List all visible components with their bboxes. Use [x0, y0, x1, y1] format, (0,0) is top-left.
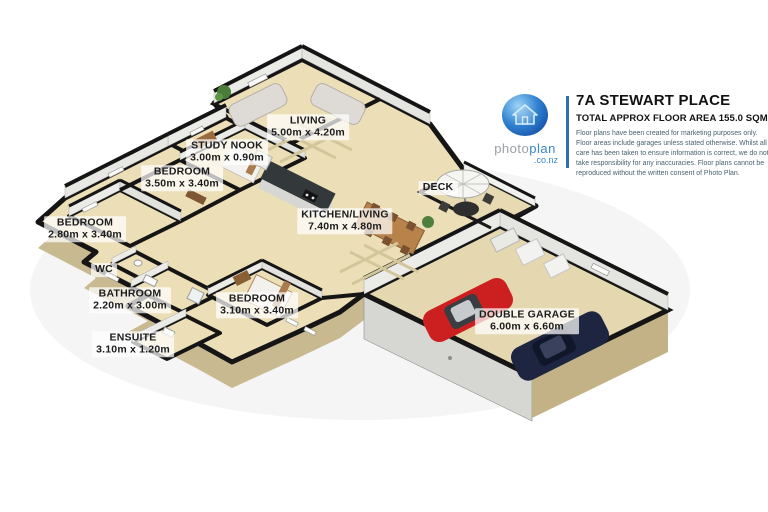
room-label-deck: DECK	[419, 181, 458, 195]
page-title: 7A STEWART PLACE	[576, 92, 768, 109]
floor-area-subtitle: TOTAL APPROX FLOOR AREA 155.0 SQM	[576, 113, 768, 124]
title-block: 7A STEWART PLACE TOTAL APPROX FLOOR AREA…	[576, 92, 768, 179]
garage-door-handle	[448, 356, 452, 360]
room-label-kitchen-living: KITCHEN/LIVING 7.40m x 4.80m	[297, 208, 392, 234]
floor-plan-page: LIVING 5.00m x 4.20m STUDY NOOK 3.00m x …	[0, 0, 768, 512]
cooktop-burner	[306, 194, 309, 197]
floor-plan-illustration	[0, 0, 768, 512]
room-label-bedroom3: BEDROOM 2.80m x 3.40m	[44, 216, 126, 242]
room-label-living: LIVING 5.00m x 4.20m	[267, 114, 349, 140]
disclaimer-text: Floor plans have been created for market…	[576, 129, 768, 179]
room-label-double-garage: DOUBLE GARAGE 6.00m x 6.60m	[475, 308, 579, 334]
room-label-bedroom2: BEDROOM 3.50m x 3.40m	[141, 165, 223, 191]
plant	[422, 216, 434, 228]
plant	[215, 93, 223, 101]
title-divider	[566, 96, 569, 168]
brand-name: photoplan	[486, 142, 564, 155]
photoplan-brand: photoplan .co.nz	[486, 94, 564, 167]
brand-suffix: .co.nz	[486, 155, 564, 167]
room-label-bathroom: BATHROOM 2.20m x 3.00m	[89, 287, 171, 313]
cooktop-burner	[312, 197, 315, 200]
room-label-bedroom4: BEDROOM 3.10m x 3.40m	[216, 292, 298, 318]
room-label-ensuite: ENSUITE 3.10m x 1.20m	[92, 331, 174, 357]
outdoor-table	[453, 202, 479, 217]
photoplan-logo	[502, 94, 548, 136]
toilet	[134, 260, 142, 266]
house-icon	[511, 103, 539, 127]
room-label-study-nook: STUDY NOOK 3.00m x 0.90m	[186, 139, 268, 165]
room-label-wc: WC	[91, 263, 117, 277]
